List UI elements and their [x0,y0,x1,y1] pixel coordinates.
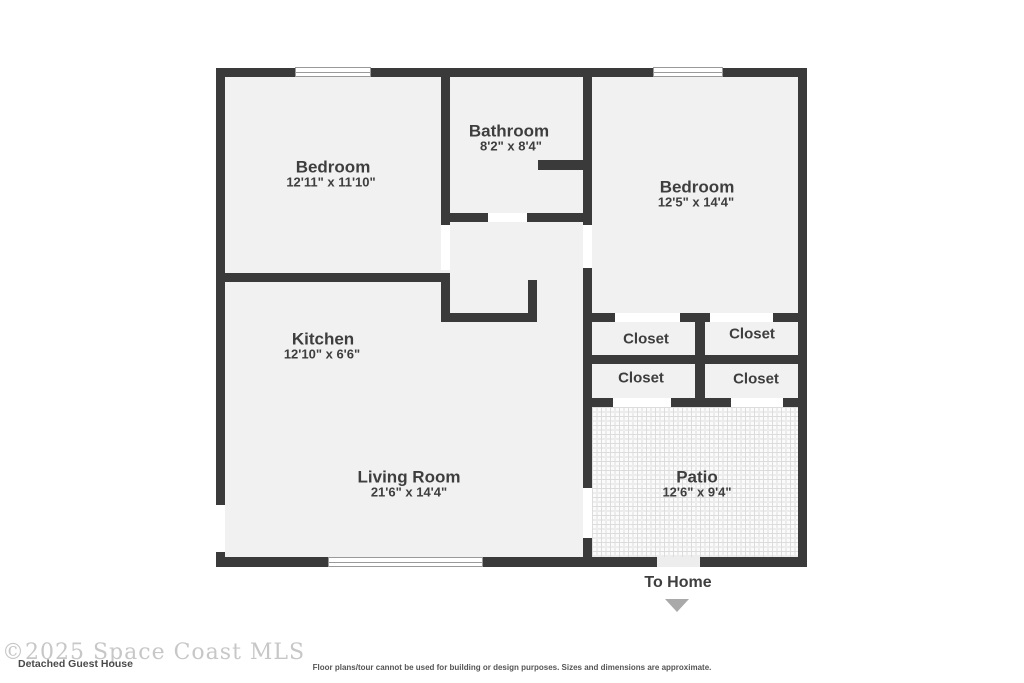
room-label-closet: Closet [729,327,775,342]
room-label-living-room: Living Room [358,469,461,486]
wall [592,313,615,322]
wall [527,213,592,222]
wall [671,398,731,407]
room-dims-kitchen: 12'10" x 6'6" [284,348,360,361]
wall [450,213,488,222]
wall [225,273,450,282]
wall [783,398,798,407]
door-opening [583,488,592,538]
wall [441,313,537,322]
room-dims-living-room: 21'6" x 14'4" [371,486,447,499]
room-label-closet: Closet [733,372,779,387]
plan-title: Detached Guest House [18,658,133,670]
door-opening [488,213,527,222]
room-label-closet: Closet [623,332,669,347]
door-opening [583,225,592,268]
door-opening [441,225,450,270]
wall [592,355,798,364]
wall [583,68,592,225]
wall [583,268,592,488]
door-opening [731,398,783,407]
wall [538,160,592,170]
room-label-kitchen: Kitchen [292,331,354,348]
window [653,67,723,77]
room-label-patio: Patio [676,469,718,486]
room-label-closet: Closet [618,371,664,386]
room-label-bedroom-1: Bedroom [296,159,371,176]
wall [583,538,592,567]
window [295,67,371,77]
door-opening [216,505,225,552]
wall [528,280,537,322]
door-opening [613,398,671,407]
room-dims-bedroom-1: 12'11" x 11'10" [286,176,375,189]
to-home-arrow-icon [665,599,689,612]
room-label-bathroom: Bathroom [469,123,549,140]
floor-plan-page: Bedroom 12'11" x 11'10" Bathroom 8'2" x … [0,0,1024,683]
room-label-bedroom-2: Bedroom [660,179,735,196]
wall [441,68,450,225]
door-opening [710,313,773,322]
disclaimer-text: Floor plans/tour cannot be used for buil… [313,663,712,672]
room-dims-bedroom-2: 12'5" x 14'4" [658,196,734,209]
room-dims-patio: 12'6" x 9'4" [662,486,731,499]
wall [216,557,807,567]
window [328,557,483,567]
wall [592,398,613,407]
to-home-label: To Home [644,575,711,591]
patio-exit-opening [657,557,700,567]
wall [216,68,225,567]
wall [773,313,798,322]
wall [798,68,807,567]
room-dims-bathroom: 8'2" x 8'4" [480,140,542,153]
door-opening [615,313,680,322]
